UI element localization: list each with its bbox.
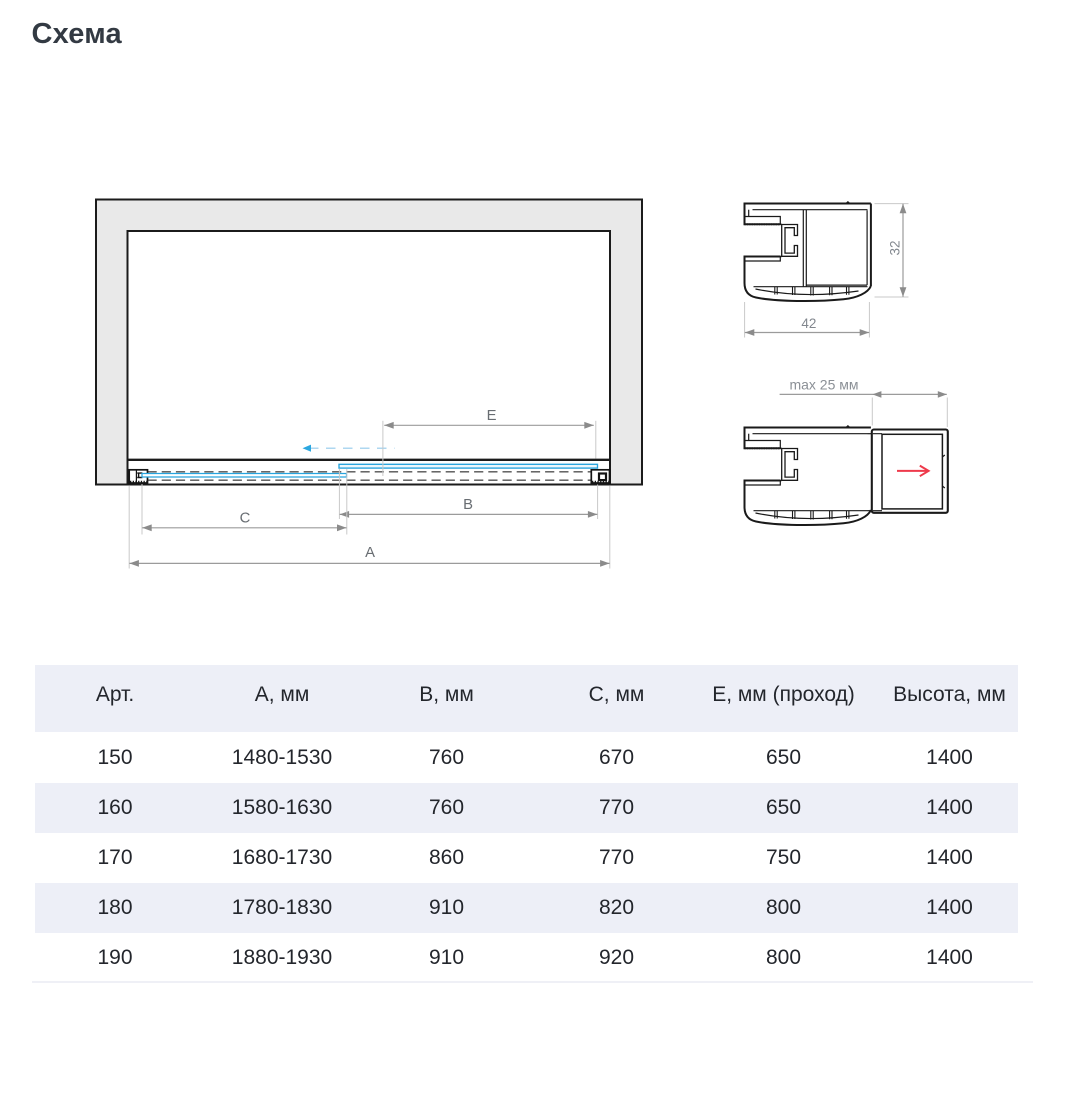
svg-text:B: B <box>463 497 473 513</box>
svg-text:C: C <box>240 510 251 526</box>
svg-text:42: 42 <box>801 316 816 331</box>
svg-text:E: E <box>487 408 497 424</box>
svg-text:max 25 мм: max 25 мм <box>789 377 858 393</box>
svg-text:A: A <box>365 545 375 561</box>
svg-text:32: 32 <box>888 240 903 255</box>
